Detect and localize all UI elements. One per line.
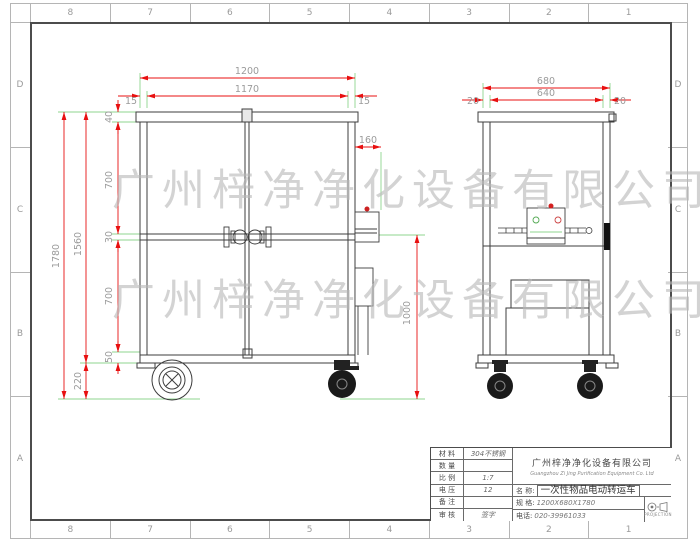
front-top-latch-icon bbox=[242, 109, 252, 122]
dim-side-total-w: 680 bbox=[537, 76, 555, 87]
dim-total-h: 1780 bbox=[51, 244, 62, 268]
dim-upper-panel-h: 700 bbox=[104, 171, 115, 189]
control-panel bbox=[527, 204, 565, 245]
dim-lower-panel-h: 700 bbox=[104, 287, 115, 305]
dim-side-edge-r: 20 bbox=[614, 96, 626, 107]
front-control-box bbox=[355, 207, 379, 243]
side-caster-right-icon bbox=[577, 360, 603, 399]
tb-label-material: 材 料 bbox=[431, 448, 464, 460]
title-block-right: 广州梓净净化设备有限公司 Guangzhou Zi Jing Purificat… bbox=[513, 448, 671, 521]
dim-side-inner-w: 640 bbox=[537, 88, 555, 99]
dim-handle-depth: 160 bbox=[359, 135, 377, 146]
company-name-en: Guangzhou Zi Jing Purification Equipment… bbox=[530, 471, 653, 477]
dim-wheel-h: 220 bbox=[73, 372, 84, 390]
tb-value-approve: 签字 bbox=[464, 509, 513, 521]
company-cell: 广州梓净净化设备有限公司 Guangzhou Zi Jing Purificat… bbox=[513, 448, 671, 485]
dim-side-edge-l: 20 bbox=[467, 96, 479, 107]
title-block: 材 料 304不锈钢 数 量 比 例 1:7 电 压 12 备 注 审 核 签字… bbox=[430, 447, 672, 521]
dim-rail-h: 30 bbox=[104, 231, 115, 243]
side-door-handle-icon bbox=[604, 223, 610, 250]
tb-label-approve: 审 核 bbox=[431, 509, 464, 521]
tb-value-voltage: 12 bbox=[464, 485, 513, 497]
side-caster-left-icon bbox=[487, 360, 513, 399]
dim-front-edge-r: 15 bbox=[358, 96, 370, 107]
spec-row: 规 格: 1200X680X1780 bbox=[513, 497, 644, 509]
front-caster-icon bbox=[328, 360, 359, 398]
projection-symbol-icon bbox=[647, 502, 669, 512]
company-name-cn: 广州梓净净化设备有限公司 bbox=[532, 456, 652, 469]
battery-box-upper bbox=[511, 280, 589, 308]
dim-base-h: 50 bbox=[104, 351, 115, 363]
dim-cap-h: 40 bbox=[104, 111, 115, 123]
side-top-cap bbox=[478, 112, 614, 122]
front-view bbox=[136, 109, 379, 400]
tb-label-remark: 备 注 bbox=[431, 497, 464, 509]
tb-label-voltage: 电 压 bbox=[431, 485, 464, 497]
emergency-button-icon bbox=[549, 204, 554, 209]
phone-row: 电话: 020-39961033 bbox=[513, 510, 644, 522]
tb-value-material: 304不锈钢 bbox=[464, 448, 513, 460]
battery-box-lower bbox=[506, 308, 589, 355]
dim-front-inner-w: 1170 bbox=[235, 84, 259, 95]
front-body bbox=[140, 122, 355, 355]
side-view bbox=[476, 112, 618, 399]
spec-value: 1200X680X1780 bbox=[537, 499, 596, 507]
spec-label: 规 格: bbox=[516, 498, 535, 508]
product-name-label: 名 称: bbox=[516, 486, 535, 496]
projection-cell: PROJECTION bbox=[644, 497, 671, 522]
tb-label-scale: 比 例 bbox=[431, 472, 464, 484]
tb-value-remark bbox=[464, 497, 513, 509]
product-name-row: 名 称: 一次性物品电动转运车 bbox=[513, 485, 671, 497]
tb-value-scale: 1:7 bbox=[464, 472, 513, 484]
dim-front-total-w: 1200 bbox=[235, 66, 259, 77]
front-base bbox=[140, 355, 355, 363]
dim-body-h: 1560 bbox=[73, 232, 84, 256]
projection-label: PROJECTION bbox=[644, 512, 672, 517]
phone-value: 020-39961033 bbox=[534, 512, 586, 520]
dim-handle-floor-h: 1000 bbox=[402, 301, 413, 325]
phone-label: 电话: bbox=[516, 511, 532, 521]
tb-value-quantity bbox=[464, 460, 513, 472]
product-name-value: 一次性物品电动转运车 bbox=[537, 485, 640, 497]
front-left-wheel-icon bbox=[152, 360, 192, 400]
tb-label-quantity: 数 量 bbox=[431, 460, 464, 472]
dim-front-edge-l: 15 bbox=[125, 96, 137, 107]
front-side-box bbox=[355, 268, 373, 355]
